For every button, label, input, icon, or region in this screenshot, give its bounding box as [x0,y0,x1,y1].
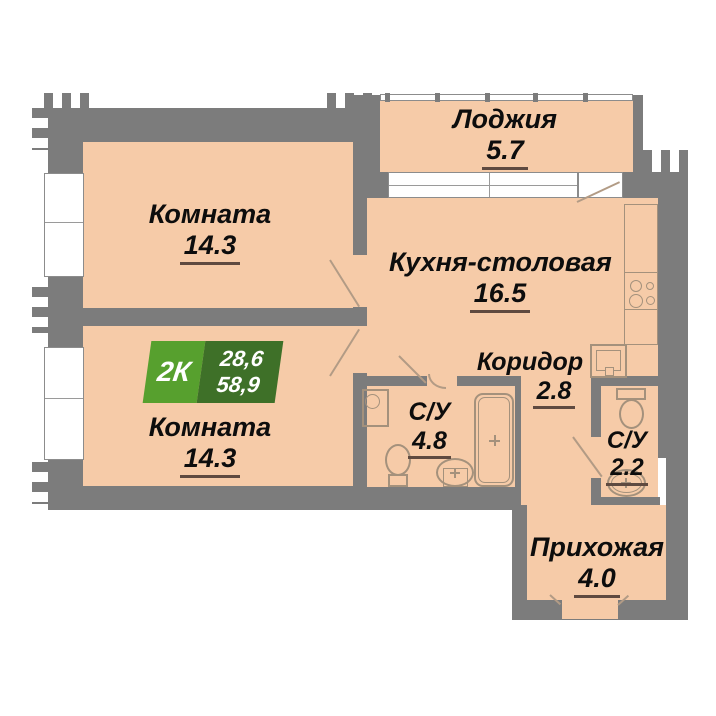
bath-small-label: С/У 2.2 [587,427,667,486]
badge-area-lower: 58,9 [215,372,262,398]
loggia-glazing-tick-1 [385,93,390,102]
kitchen-label: Кухня-столовая 16.5 [389,247,611,313]
room-bottom-name: Комната [110,412,310,443]
wall-hatch-top-left [44,93,98,109]
wall-bottom-left-block [48,486,527,510]
wall-loggia-right [633,95,643,172]
balcony-door-opening [578,172,623,198]
toilet-small-icon [616,388,646,430]
wall-kitchen-top-left [367,172,388,198]
room-bottom-area: 14.3 [180,443,241,478]
wall-hatch-loggia-right [643,150,688,172]
bath-small-area: 2.2 [606,454,647,485]
badge-type: 2К [143,341,206,403]
loggia-name: Лоджия [405,104,605,135]
wall-hatch-left-bottom [32,462,48,504]
wall-divider-tip [347,307,367,326]
bath-main-area: 4.8 [408,427,451,460]
floor-entry-opening [562,600,618,619]
bath-main-label: С/У 4.8 [377,398,482,459]
apartment-badge: 2К 28,6 58,9 [143,341,284,403]
badge-area-upper: 28,6 [219,346,266,372]
floor-plan: Комната 14.3 Комната 14.3 Лоджия 5.7 Кух… [0,0,716,716]
loggia-glazing-tick-2 [435,93,440,102]
wall-top-left-block [48,108,367,142]
corridor-name: Коридор [460,348,600,377]
window-room-bottom [44,347,84,460]
loggia-label: Лоджия 5.7 [405,104,605,170]
wall-bath-main-top-left [347,376,427,386]
loggia-glazing [380,94,633,101]
bath-main-name: С/У [377,398,482,427]
window-loggia-kitchen-midline [389,185,577,186]
hall-name: Прихожая [512,532,682,563]
room-bottom-label: Комната 14.3 [110,412,310,478]
badge-areas: 28,6 58,9 [197,341,284,403]
wall-hatch-left-middle [32,287,48,333]
stove-icon [626,274,658,310]
corridor-area: 2.8 [533,377,576,410]
hall-area: 4.0 [574,563,620,598]
window-room-top [44,173,84,277]
loggia-glazing-tick-3 [485,93,490,102]
wall-right-exterior-upper [658,172,688,458]
loggia-area: 5.7 [482,135,528,170]
kitchen-area: 16.5 [470,278,531,313]
loggia-glazing-tick-5 [583,93,588,102]
wall-between-rooms [55,308,360,326]
room-top-label: Комната 14.3 [110,199,310,265]
bath-small-name: С/У [587,427,667,454]
sink-main-icon [436,458,474,488]
wall-hatch-left-upper [32,108,48,150]
room-top-name: Комната [110,199,310,230]
floor-doorway-room-top [347,255,367,307]
window-room-bottom-divider [45,398,83,399]
hall-label: Прихожая 4.0 [512,532,682,598]
room-top-area: 14.3 [180,230,241,265]
window-loggia-kitchen-divider [489,173,490,197]
loggia-glazing-tick-4 [533,93,538,102]
kitchen-counter-divider-1 [625,272,657,273]
window-room-top-divider [45,222,83,223]
kitchen-name: Кухня-столовая [389,247,611,278]
wall-kitchen-top-right [623,172,660,198]
